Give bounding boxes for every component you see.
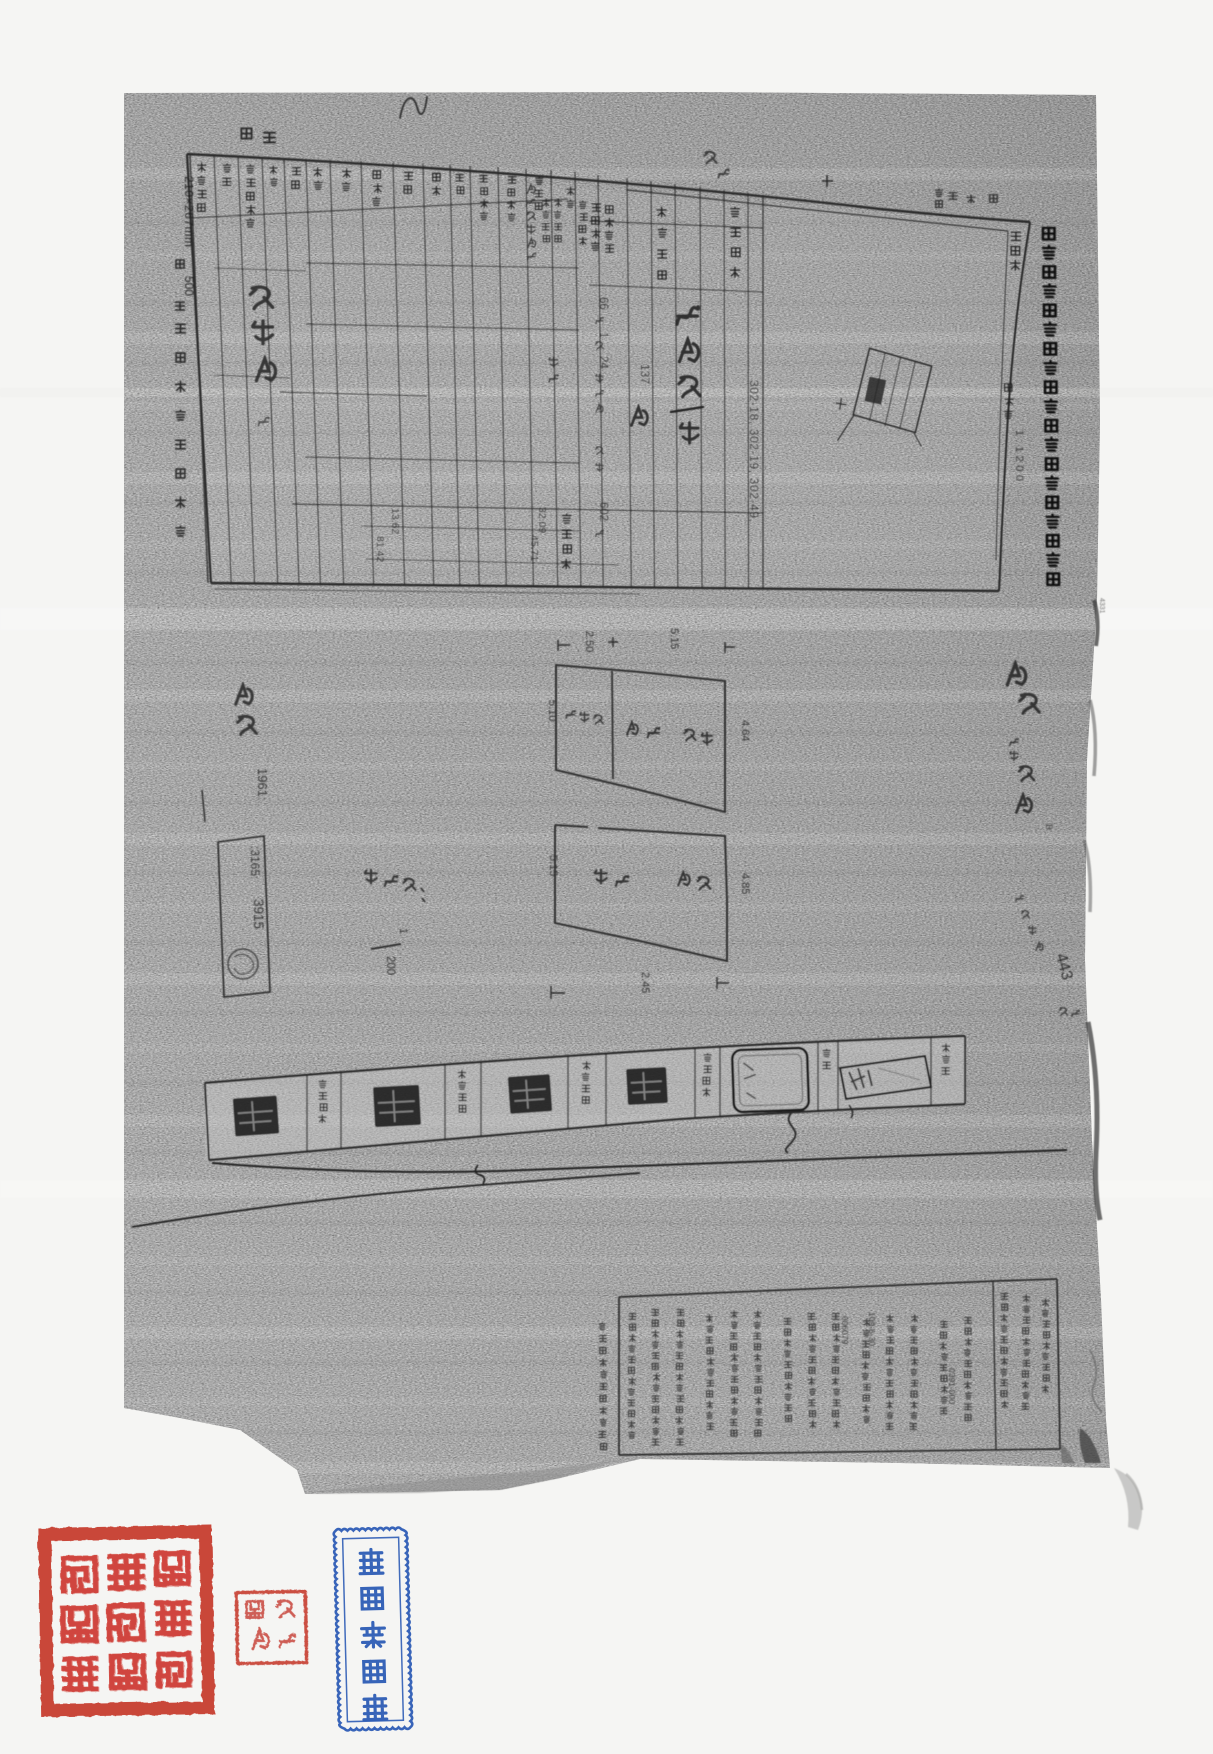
svg-text:81.42: 81.42 <box>374 536 386 562</box>
svg-text:B: B <box>1044 824 1054 830</box>
svg-text:006079: 006079 <box>840 1316 850 1345</box>
svg-text:1: 1 <box>397 928 409 934</box>
svg-text:24: 24 <box>597 356 609 369</box>
svg-text:5.15: 5.15 <box>547 855 559 876</box>
svg-text:602: 602 <box>597 502 609 521</box>
svg-text:2.50: 2.50 <box>583 631 595 652</box>
svg-text::3165:: :3165: <box>248 846 262 879</box>
svg-text:4.64: 4.64 <box>739 720 751 741</box>
svg-text:32.09: 32.09 <box>536 507 548 533</box>
svg-text:1:1200: 1:1200 <box>1013 430 1025 485</box>
svg-text:45.71: 45.71 <box>528 535 540 561</box>
svg-text:1: 1 <box>597 332 609 338</box>
svg-text:200: 200 <box>384 956 396 975</box>
svg-text:4331: 4331 <box>1098 598 1105 614</box>
svg-text:210×267mm: 210×267mm <box>182 176 196 248</box>
svg-text:66: 66 <box>597 297 609 310</box>
svg-text:1961:: 1961: <box>255 768 270 801</box>
svg-text:500: 500 <box>182 276 196 296</box>
svg-text:2.45: 2.45 <box>639 972 651 993</box>
svg-text:5.10: 5.10 <box>546 700 558 721</box>
svg-text:13.62: 13.62 <box>389 508 401 534</box>
svg-text:137: 137 <box>638 364 652 384</box>
svg-text:4.85: 4.85 <box>739 873 751 894</box>
svg-text:109-6-30: 109-6-30 <box>867 1312 877 1346</box>
svg-text:0391-000: 0391-000 <box>947 1368 957 1404</box>
svg-text:302-18, 302-19, 302-49,: 302-18, 302-19, 302-49, <box>747 380 761 523</box>
svg-text:3915: 3915 <box>251 899 266 929</box>
svg-text:5.15: 5.15 <box>668 628 680 649</box>
